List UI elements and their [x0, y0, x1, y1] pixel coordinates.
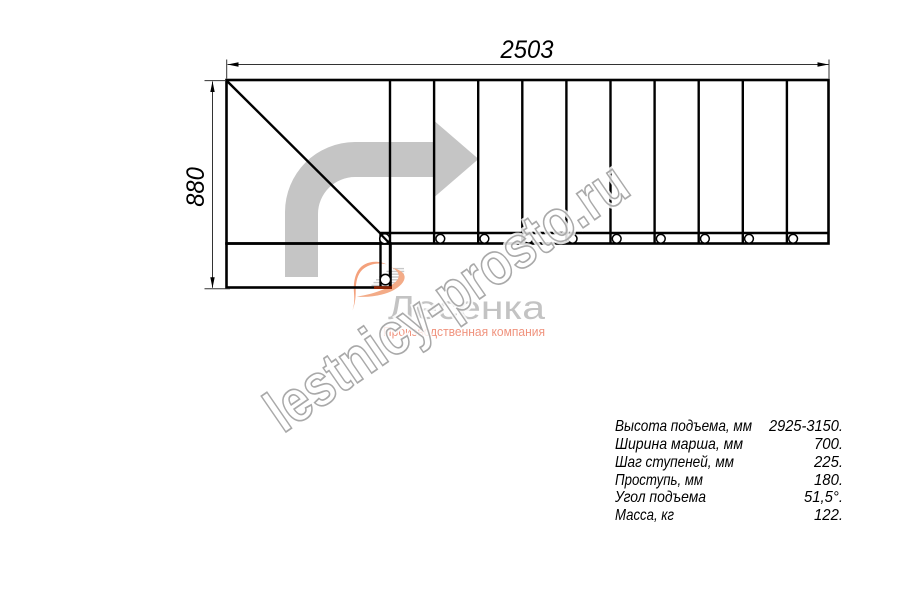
svg-text:180.: 180. [814, 472, 843, 489]
svg-text:Ширина марша, мм: Ширина марша, мм [615, 436, 743, 453]
svg-text:51,5°.: 51,5°. [804, 489, 843, 506]
svg-text:Проступь, мм: Проступь, мм [615, 472, 703, 489]
svg-text:Высота подъема, мм: Высота подъема, мм [615, 418, 752, 435]
svg-text:700.: 700. [814, 436, 843, 453]
svg-text:Угол подъема: Угол подъема [614, 489, 706, 506]
svg-text:Масса, кг: Масса, кг [615, 507, 674, 524]
svg-text:122.: 122. [814, 507, 843, 524]
svg-text:2503: 2503 [500, 36, 554, 64]
svg-text:Шаг ступеней, мм: Шаг ступеней, мм [615, 454, 734, 471]
svg-text:880: 880 [182, 167, 210, 207]
svg-text:2925-3150.: 2925-3150. [768, 418, 843, 435]
svg-text:225.: 225. [813, 454, 843, 471]
